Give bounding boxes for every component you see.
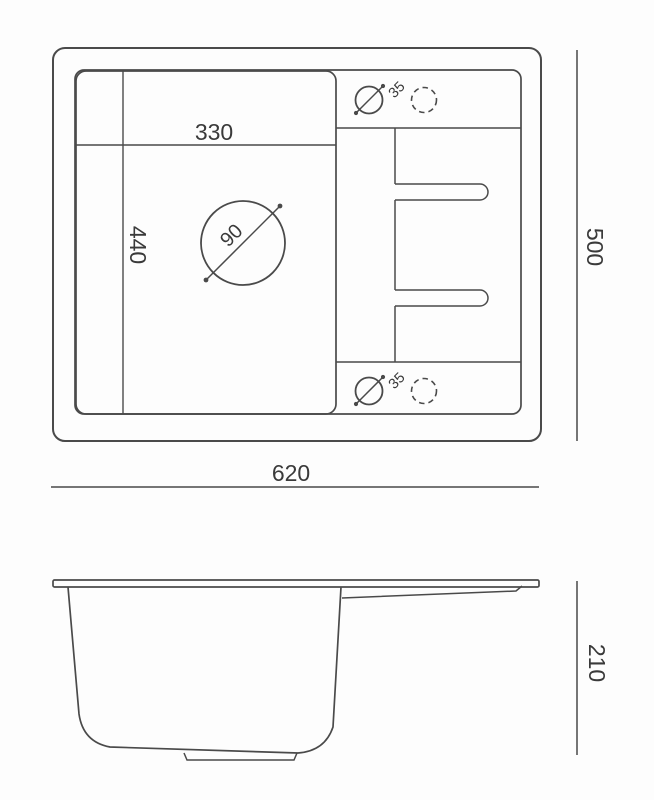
- side-view-drain-fitting: [184, 753, 297, 760]
- drainboard-groove-bottom: [395, 290, 488, 306]
- bowl-depth-dim-label: 440: [125, 226, 151, 264]
- drain-diameter-arrow-end-upper: [278, 204, 283, 209]
- bowl-width-dim-label: 330: [195, 119, 233, 145]
- dimension-lines: [51, 50, 577, 755]
- overall-depth-dim-label: 500: [582, 228, 608, 266]
- drain-diameter-line: [205, 205, 281, 281]
- sink-technical-drawing: 330 440 90 35 35 620 500 210: [0, 0, 654, 800]
- drain-diameter-arrow-end-lower: [204, 278, 209, 283]
- tap-hole-top-arrow-end-lower: [354, 111, 358, 115]
- tap-hole-bottom-arrow-end-upper: [381, 375, 385, 379]
- drainboard-groove-top: [395, 184, 488, 200]
- tap-hole-bottom-arrow-end-lower: [354, 402, 358, 406]
- side-view-height-dim-label: 210: [584, 644, 610, 682]
- side-view: [53, 580, 539, 760]
- side-view-countertop-flange: [53, 580, 539, 587]
- tap-hole-bottom-dim-label: 35: [386, 370, 409, 393]
- tap-hole-top-dim-label: 35: [386, 79, 409, 102]
- side-view-bowl-profile: [68, 587, 341, 753]
- technical-drawing-page: 330 440 90 35 35 620 500 210: [0, 0, 654, 800]
- tap-hole-top-arrow-end-upper: [381, 84, 385, 88]
- drain-diameter-dim-label: 90: [216, 220, 247, 251]
- overall-width-dim-label: 620: [272, 460, 310, 486]
- tap-hole-top-optional-dashed-circle: [412, 88, 437, 113]
- tap-hole-bottom-optional-dashed-circle: [412, 379, 437, 404]
